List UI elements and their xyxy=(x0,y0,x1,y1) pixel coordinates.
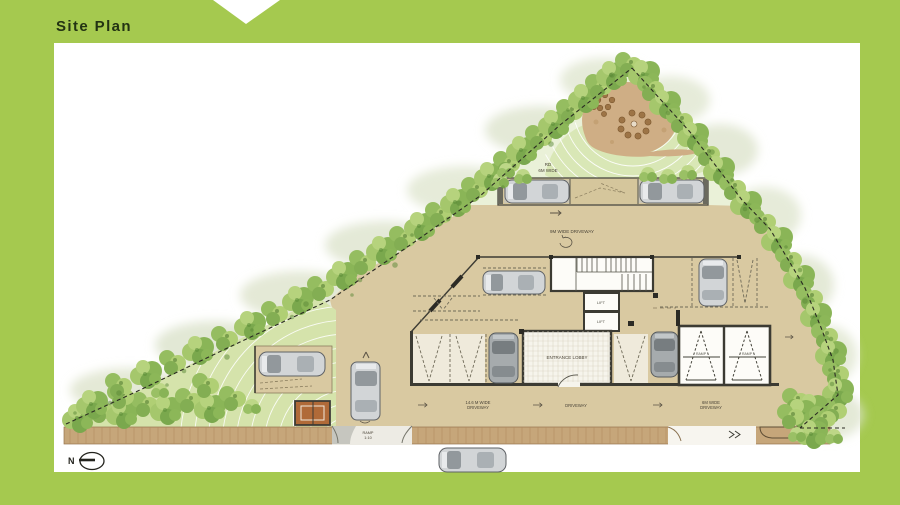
svg-text:Site Plan: Site Plan xyxy=(56,18,132,35)
svg-text:LIFT: LIFT xyxy=(597,300,606,305)
svg-text:9M WIDE DRIVEWAY: 9M WIDE DRIVEWAY xyxy=(550,229,594,234)
svg-text:DRIVEWAY: DRIVEWAY xyxy=(565,403,587,408)
svg-text:N: N xyxy=(68,456,75,466)
svg-text:LIFT: LIFT xyxy=(597,319,606,324)
svg-text:1:10: 1:10 xyxy=(364,436,371,440)
svg-text:RAMP: RAMP xyxy=(696,352,707,356)
svg-text:RAMP: RAMP xyxy=(742,352,753,356)
svg-text:RD: RD xyxy=(545,162,552,167)
svg-text:ENTRANCE LOBBY: ENTRANCE LOBBY xyxy=(546,355,587,360)
svg-text:DRIVEWAY: DRIVEWAY xyxy=(467,405,489,410)
svg-text:6M WIDE: 6M WIDE xyxy=(538,168,557,173)
svg-text:DRIVEWAY: DRIVEWAY xyxy=(700,405,722,410)
svg-text:RAMP: RAMP xyxy=(363,431,374,435)
